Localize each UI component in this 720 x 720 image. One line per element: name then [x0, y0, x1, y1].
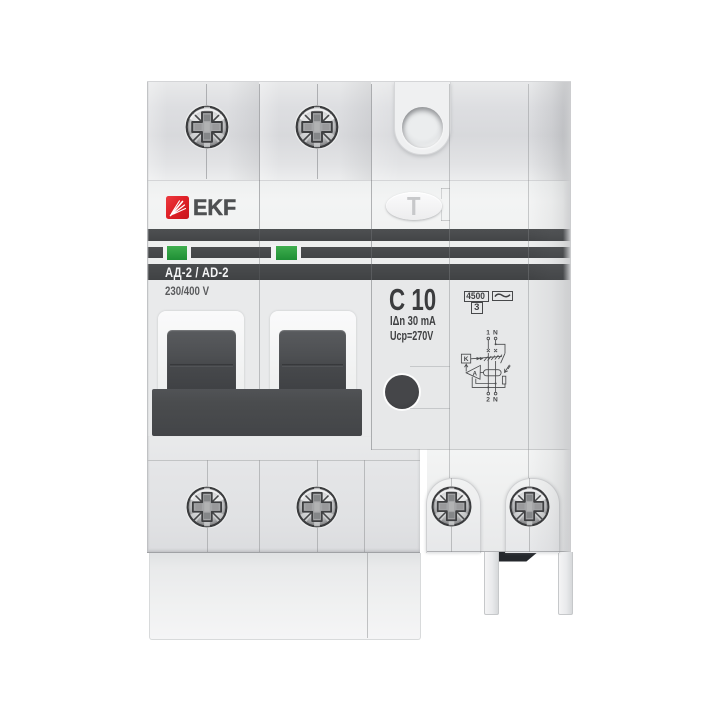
svg-text:N: N	[493, 330, 498, 337]
svg-text:K: K	[464, 356, 469, 363]
svg-text:N: N	[493, 397, 498, 404]
svg-text:2: 2	[486, 397, 490, 404]
svg-text:1: 1	[486, 330, 490, 337]
svg-text:A: A	[473, 372, 478, 378]
